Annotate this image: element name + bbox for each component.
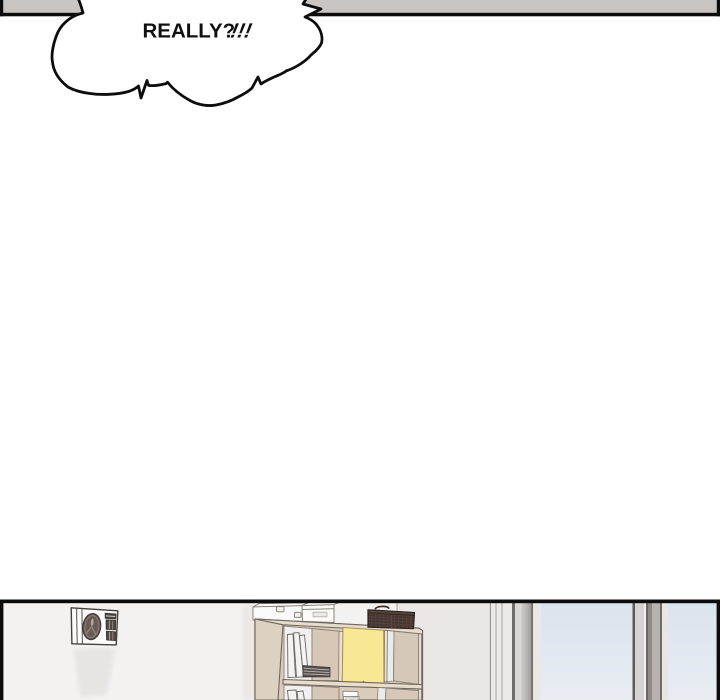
svg-text:REALLY?: REALLY?: [143, 20, 236, 43]
